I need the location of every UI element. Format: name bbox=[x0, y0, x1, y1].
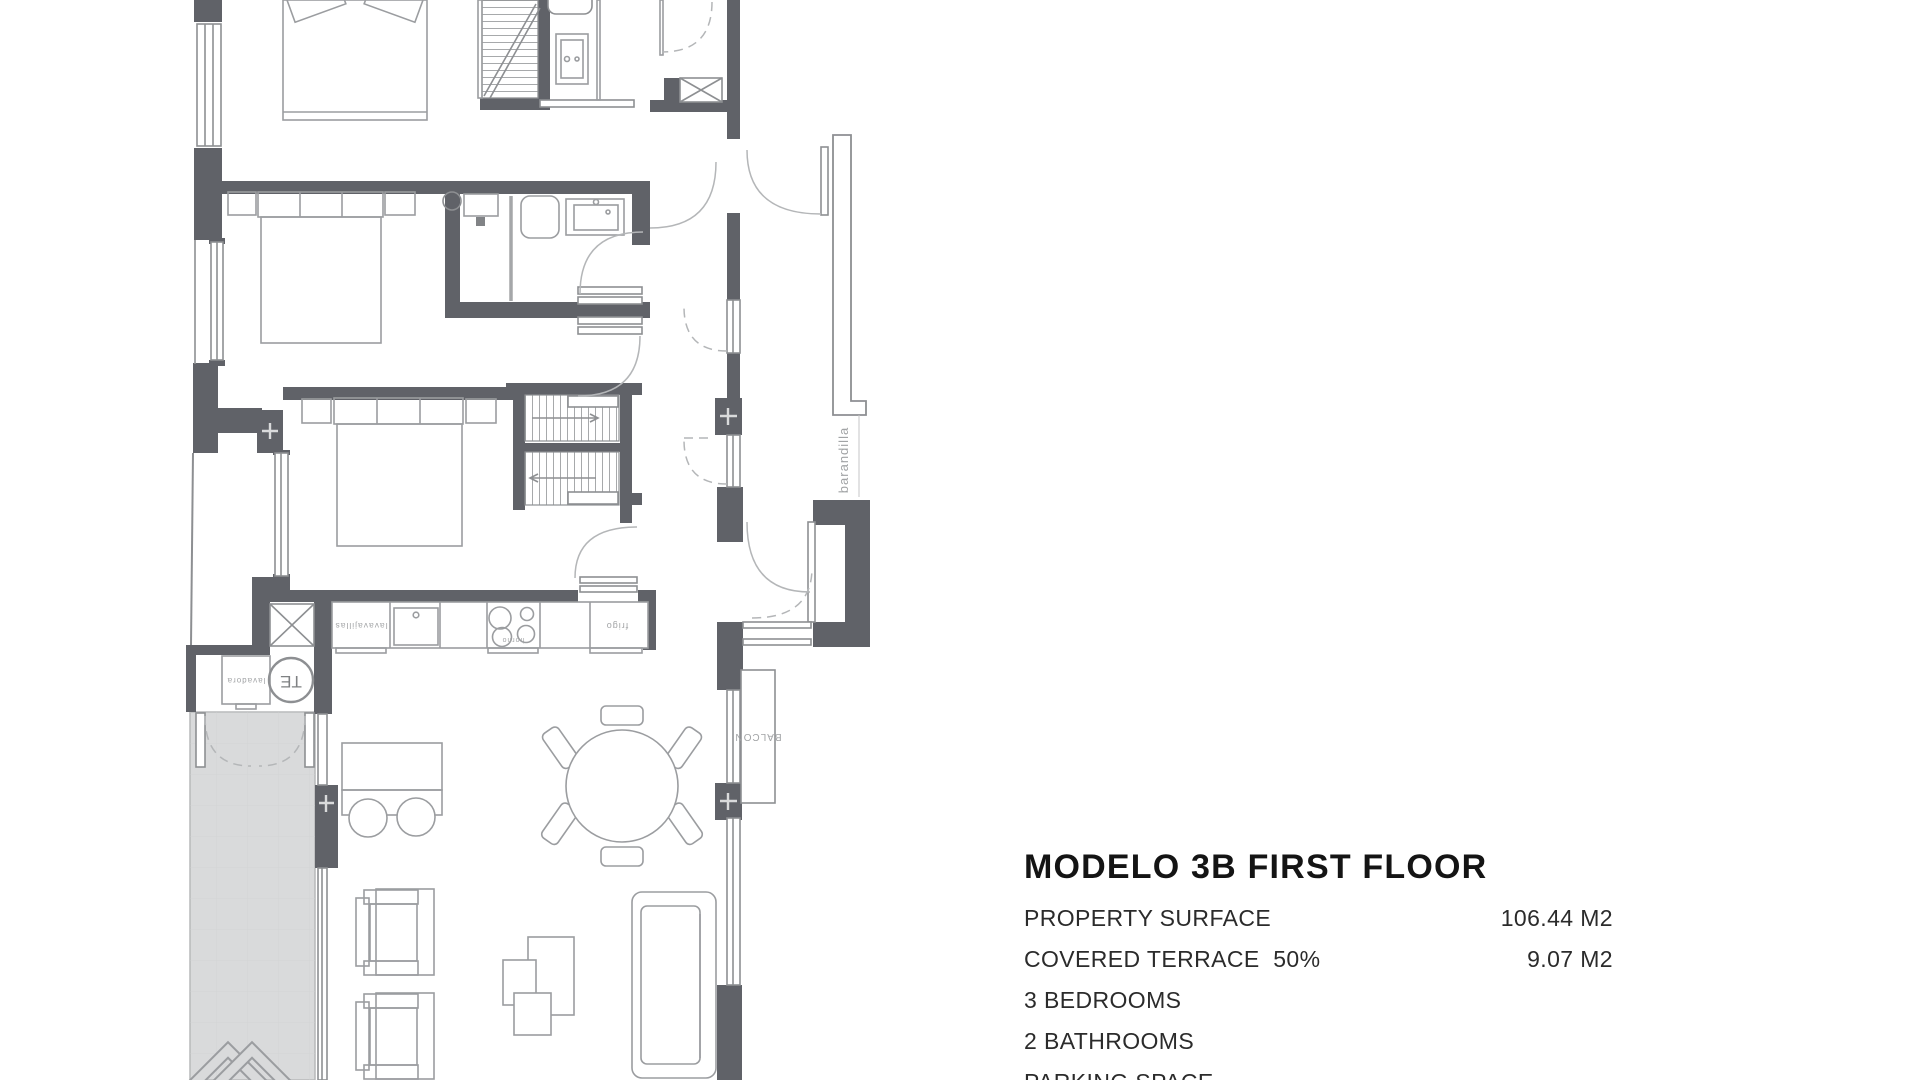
coffee-tables bbox=[503, 937, 574, 1035]
spec-row: COVERED TERRACE 50% 9.07 M2 bbox=[1024, 948, 1613, 971]
spec-value: 106.44 M2 bbox=[1501, 907, 1613, 930]
stool bbox=[349, 799, 387, 837]
dining-area bbox=[342, 706, 704, 866]
dishwasher-label: lavavajillas bbox=[334, 621, 387, 631]
spec-row: 2 BATHROOMS bbox=[1024, 1030, 1613, 1053]
spec-row: PARKING SPACE bbox=[1024, 1071, 1613, 1080]
spec-label: 2 BATHROOMS bbox=[1024, 1030, 1194, 1053]
spec-value: 9.07 M2 bbox=[1527, 948, 1613, 971]
spec-row: 3 BEDROOMS bbox=[1024, 989, 1613, 1012]
page: barandilla BALCON TE lavadora lavavajill… bbox=[0, 0, 1920, 1080]
top-bathroom bbox=[540, 0, 663, 107]
railing-outline bbox=[833, 135, 866, 415]
water-heater-label: TE bbox=[280, 672, 302, 691]
spec-label: PROPERTY SURFACE bbox=[1024, 907, 1271, 930]
oven-label: horno bbox=[502, 636, 525, 643]
upper-staircase bbox=[478, 0, 540, 98]
balcony-label: BALCON bbox=[734, 731, 781, 742]
spec-label: 3 BEDROOMS bbox=[1024, 989, 1181, 1012]
sofa bbox=[632, 892, 716, 1078]
spec-label: COVERED TERRACE 50% bbox=[1024, 948, 1320, 971]
bedroom-3 bbox=[302, 398, 496, 546]
railing-label: barandilla bbox=[836, 427, 851, 493]
bedroom-1 bbox=[283, 0, 427, 120]
fridge-label: frigo bbox=[606, 621, 629, 631]
bedroom-2 bbox=[228, 192, 415, 343]
armchair bbox=[356, 889, 434, 975]
info-panel: MODELO 3B FIRST FLOOR PROPERTY SURFACE 1… bbox=[1024, 849, 1613, 1080]
living-room bbox=[356, 889, 716, 1079]
stool bbox=[397, 798, 435, 836]
covered-terrace bbox=[190, 712, 315, 1080]
armchair bbox=[356, 993, 434, 1079]
dining-table bbox=[566, 730, 678, 842]
spec-label: PARKING SPACE bbox=[1024, 1071, 1214, 1080]
utility-shaft bbox=[680, 78, 722, 102]
plan-title: MODELO 3B FIRST FLOOR bbox=[1024, 849, 1613, 885]
floor-plan: barandilla BALCON TE lavadora lavavajill… bbox=[0, 0, 1920, 1080]
washer-label: lavadora bbox=[227, 676, 266, 685]
spec-row: PROPERTY SURFACE 106.44 M2 bbox=[1024, 907, 1613, 930]
